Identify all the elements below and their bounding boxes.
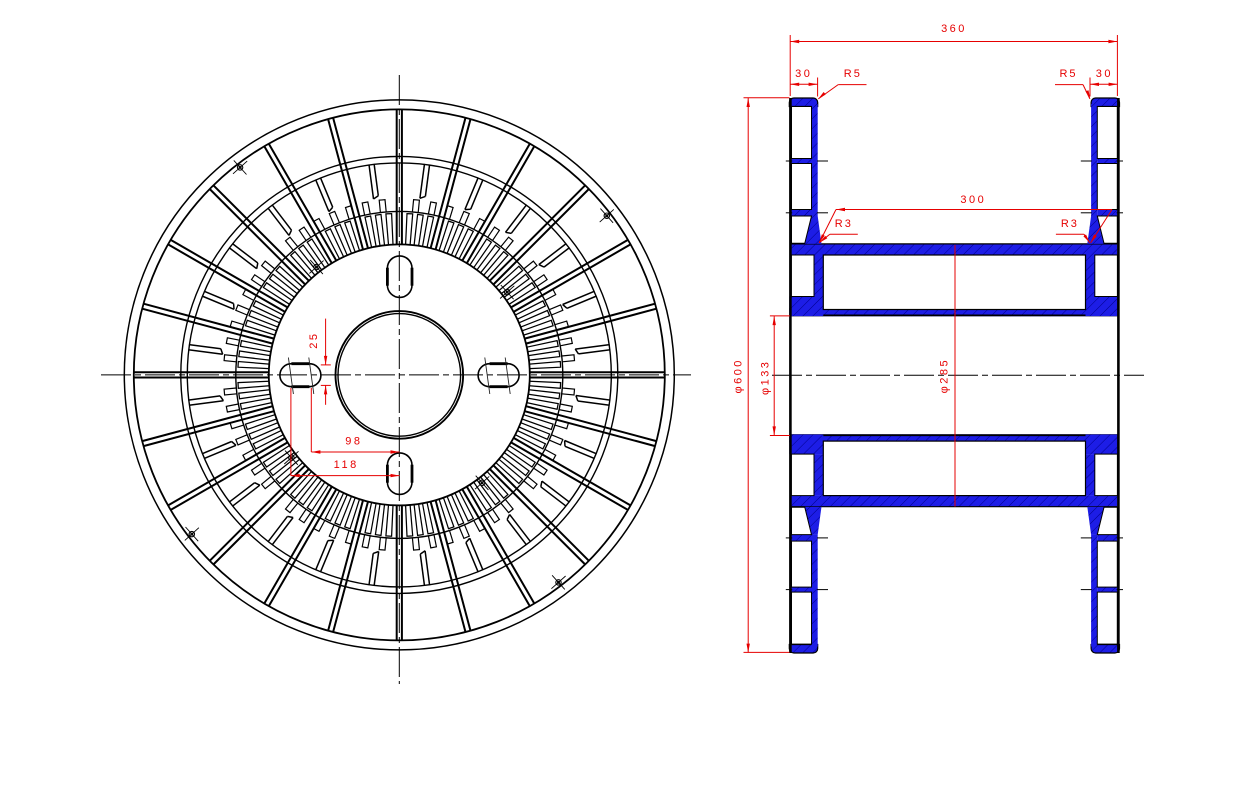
svg-text:R5: R5: [1059, 68, 1077, 80]
svg-text:300: 300: [960, 194, 986, 206]
svg-text:R5: R5: [844, 68, 862, 80]
svg-text:118: 118: [334, 459, 359, 471]
svg-text:R3: R3: [835, 218, 853, 230]
svg-text:30: 30: [1096, 68, 1113, 80]
svg-text:30: 30: [795, 68, 812, 80]
svg-text:360: 360: [941, 23, 967, 35]
svg-text:25: 25: [308, 331, 320, 348]
svg-text:φ600: φ600: [733, 358, 745, 394]
svg-text:R3: R3: [1061, 218, 1079, 230]
svg-text:φ133: φ133: [759, 360, 771, 396]
svg-text:φ285: φ285: [939, 358, 951, 394]
svg-text:98: 98: [345, 435, 362, 447]
